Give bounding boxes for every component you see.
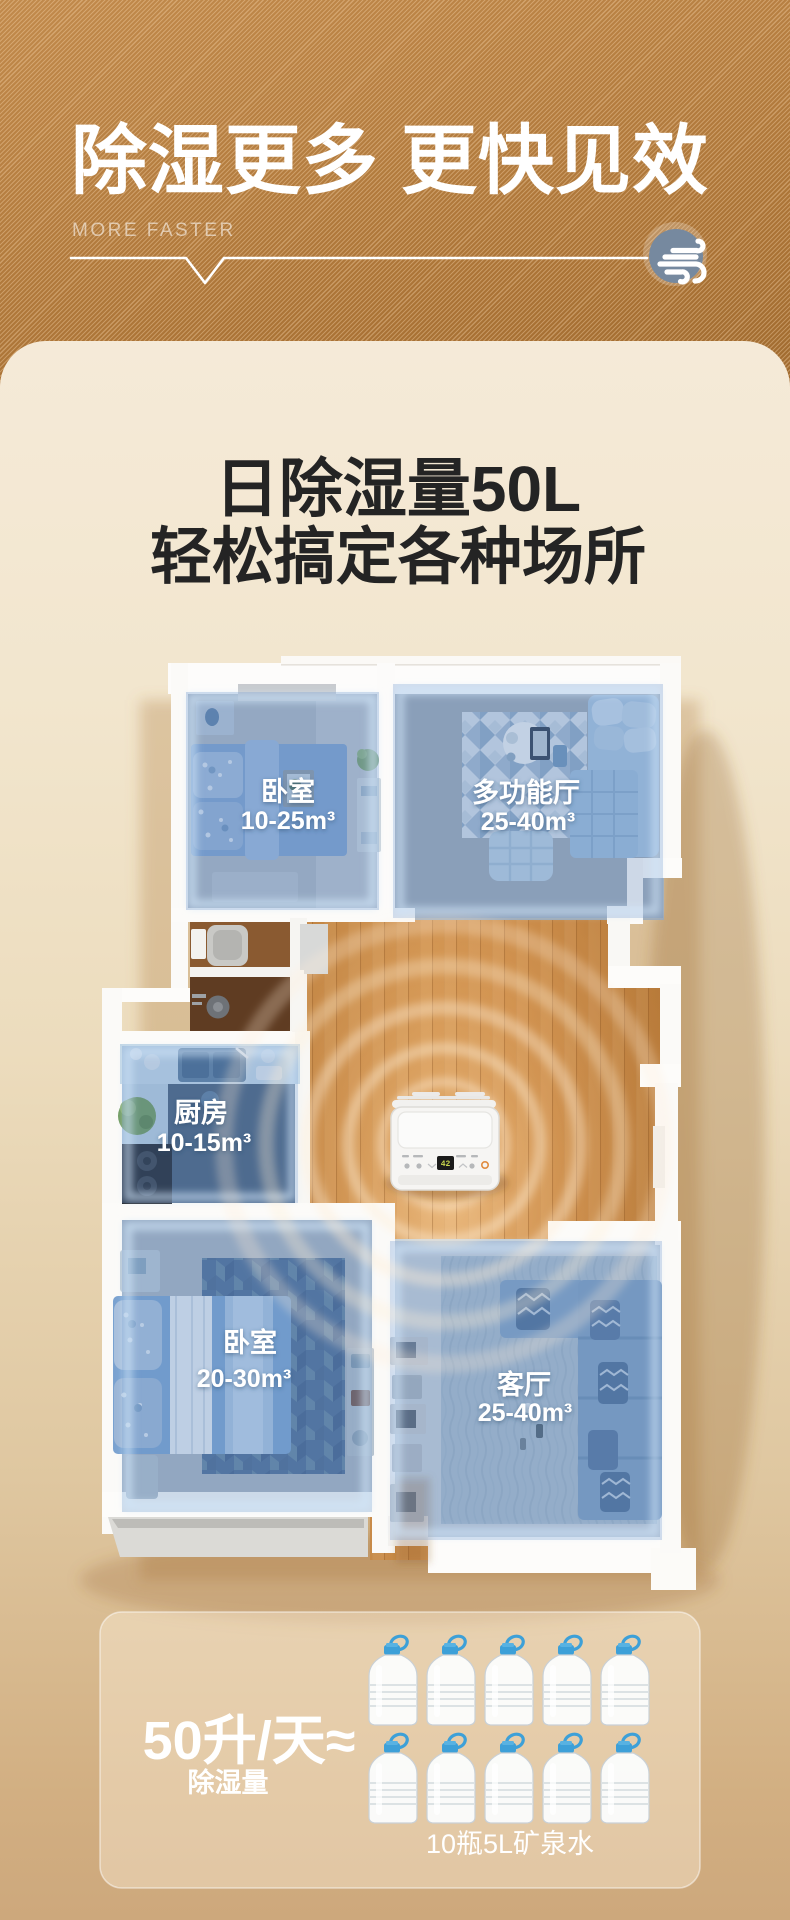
svg-text:除湿量: 除湿量	[188, 1767, 269, 1798]
svg-text:10瓶5L矿泉水: 10瓶5L矿泉水	[426, 1829, 594, 1859]
svg-text:50升/天≈: 50升/天≈	[143, 1711, 356, 1771]
